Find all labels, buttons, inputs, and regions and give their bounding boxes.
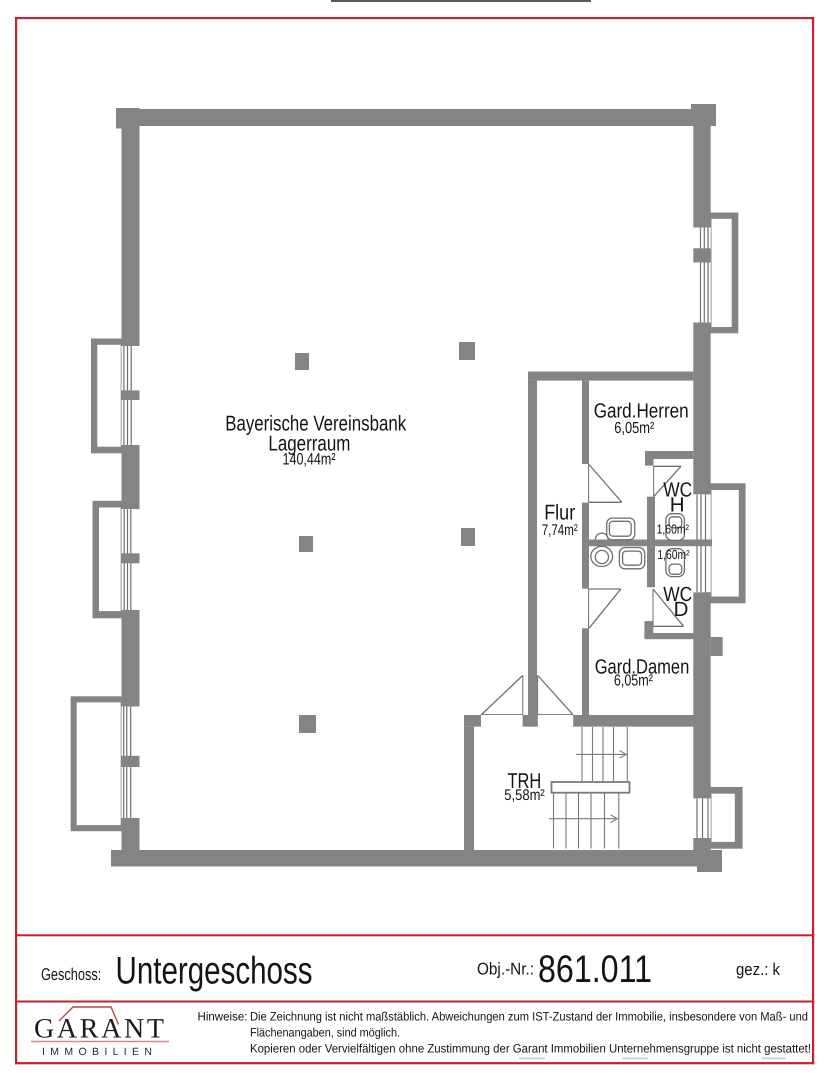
svg-text:5,58m²: 5,58m²: [504, 787, 545, 804]
svg-text:140,44m²: 140,44m²: [283, 451, 336, 469]
svg-text:6,05m²: 6,05m²: [614, 673, 654, 690]
svg-text:Kopieren oder Vervielfältigen: Kopieren oder Vervielfältigen ohne Zusti…: [250, 1041, 811, 1055]
svg-text:Untergeschoss: Untergeschoss: [116, 950, 313, 993]
svg-text:Die Zeichnung ist nicht maßstä: Die Zeichnung ist nicht maßstäblich. Abw…: [250, 1010, 808, 1024]
svg-text:1,60m²: 1,60m²: [657, 547, 690, 562]
svg-text:Geschoss:: Geschoss:: [41, 965, 101, 984]
svg-text:Obj.-Nr.:: Obj.-Nr.:: [477, 960, 534, 979]
svg-text:Hinweise:: Hinweise:: [198, 1010, 248, 1024]
svg-text:IMMOBILIEN: IMMOBILIEN: [42, 1046, 152, 1058]
svg-text:1,60m²: 1,60m²: [657, 522, 690, 537]
svg-text:H: H: [670, 494, 685, 517]
svg-text:Flur: Flur: [544, 501, 575, 525]
svg-text:Flächenangaben, sind möglich.: Flächenangaben, sind möglich.: [250, 1025, 400, 1039]
svg-text:7,74m²: 7,74m²: [542, 522, 578, 539]
svg-text:D: D: [674, 598, 689, 621]
svg-text:861.011: 861.011: [538, 948, 652, 991]
svg-text:gez.: k: gez.: k: [736, 960, 780, 979]
svg-text:6,05m²: 6,05m²: [614, 420, 655, 437]
